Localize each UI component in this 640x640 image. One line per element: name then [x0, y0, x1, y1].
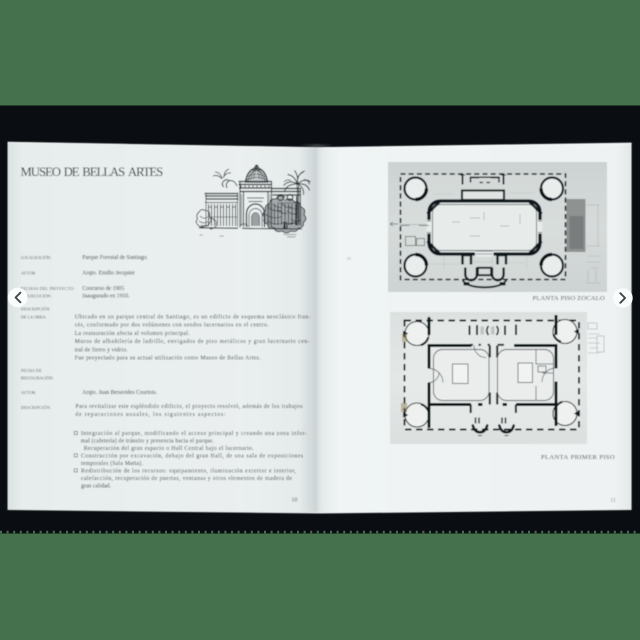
svg-text:Concurso de 1905: Concurso de 1905 [82, 286, 124, 292]
svg-text:Para revitalizar este espléndi: Para revitalizar este espléndido edifici… [76, 403, 304, 410]
svg-text:J4: J4 [347, 257, 352, 262]
svg-text:Arqto. Juan Benavides Courtois: Arqto. Juan Benavides Courtois. [82, 390, 157, 396]
svg-text:mal (cafetería) de tránsito y: mal (cafetería) de tránsito y presencia … [81, 438, 215, 445]
svg-text:AUTOR:: AUTOR: [21, 270, 37, 275]
svg-text:temporales (Sala Matta).: temporales (Sala Matta). [81, 460, 144, 467]
svg-text:Construcción por excavación, d: Construcción por excavación, debajo del … [81, 453, 304, 459]
svg-text:calefacción, recuperación de p: calefacción, recuperación de puertas, ve… [81, 475, 292, 482]
svg-text:PLANTA PRIMER PISO: PLANTA PRIMER PISO [541, 454, 616, 461]
svg-text:RESTAURACIÓN:: RESTAURACIÓN: [21, 376, 54, 381]
svg-text:AUTOR:: AUTOR: [21, 390, 37, 395]
svg-text:DE LA OBRA:: DE LA OBRA: [21, 314, 47, 319]
svg-text:DESCRIPCIÓN:: DESCRIPCIÓN: [21, 405, 52, 410]
svg-text:gran calidad.: gran calidad. [81, 483, 112, 489]
svg-text:11: 11 [610, 498, 616, 504]
svg-text:Ubicado en un parque central d: Ubicado en un parque central de Santiago… [75, 314, 311, 321]
svg-text:Inaugurado en 1910.: Inaugurado en 1910. [82, 294, 130, 300]
svg-text:Redistribución de los recursos: Redistribución de los recursos: equipami… [81, 468, 297, 474]
svg-text:Integración al parque, modific: Integración al parque, modificando el ac… [81, 430, 307, 437]
svg-text:cés, conformado por dos volúme: cés, conformado por dos volúmenes con se… [75, 322, 270, 329]
svg-text:LOCALIZACIÓN:: LOCALIZACIÓN: [21, 255, 52, 260]
svg-text:La restauración afecta al volu: La restauración afecta al volumen princi… [75, 330, 191, 337]
svg-text:Parque Forestal de Santiago.: Parque Forestal de Santiago. [82, 255, 148, 261]
svg-text:Muros de albañilería de ladril: Muros de albañilería de ladrillo, enviga… [75, 339, 310, 345]
svg-text:Fue proyectado para su actual: Fue proyectado para su actual utilizació… [75, 355, 262, 361]
svg-text:Recuperación del gran espacio: Recuperación del gran espacio o Hall Cen… [84, 446, 255, 452]
svg-text:PLANTA PISO ZOCALO: PLANTA PISO ZOCALO [533, 295, 606, 302]
svg-text:de reparaciones usuales, los s: de reparaciones usuales, los siguientes … [76, 412, 226, 418]
svg-text:FECHA DE: FECHA DE [21, 368, 42, 373]
svg-text:10: 10 [292, 498, 298, 504]
svg-text:tral de fierro y vidrio.: tral de fierro y vidrio. [75, 346, 129, 353]
svg-text:MUSEO DE BELLAS ARTES: MUSEO DE BELLAS ARTES [21, 165, 165, 179]
svg-text:FECHAS DEL PROYECTO:: FECHAS DEL PROYECTO: [21, 286, 75, 291]
svg-text:DESCRIPCIÓN: DESCRIPCIÓN [21, 307, 50, 312]
svg-text:Arqto. Emilio Jecquier: Arqto. Emilio Jecquier [82, 270, 135, 276]
